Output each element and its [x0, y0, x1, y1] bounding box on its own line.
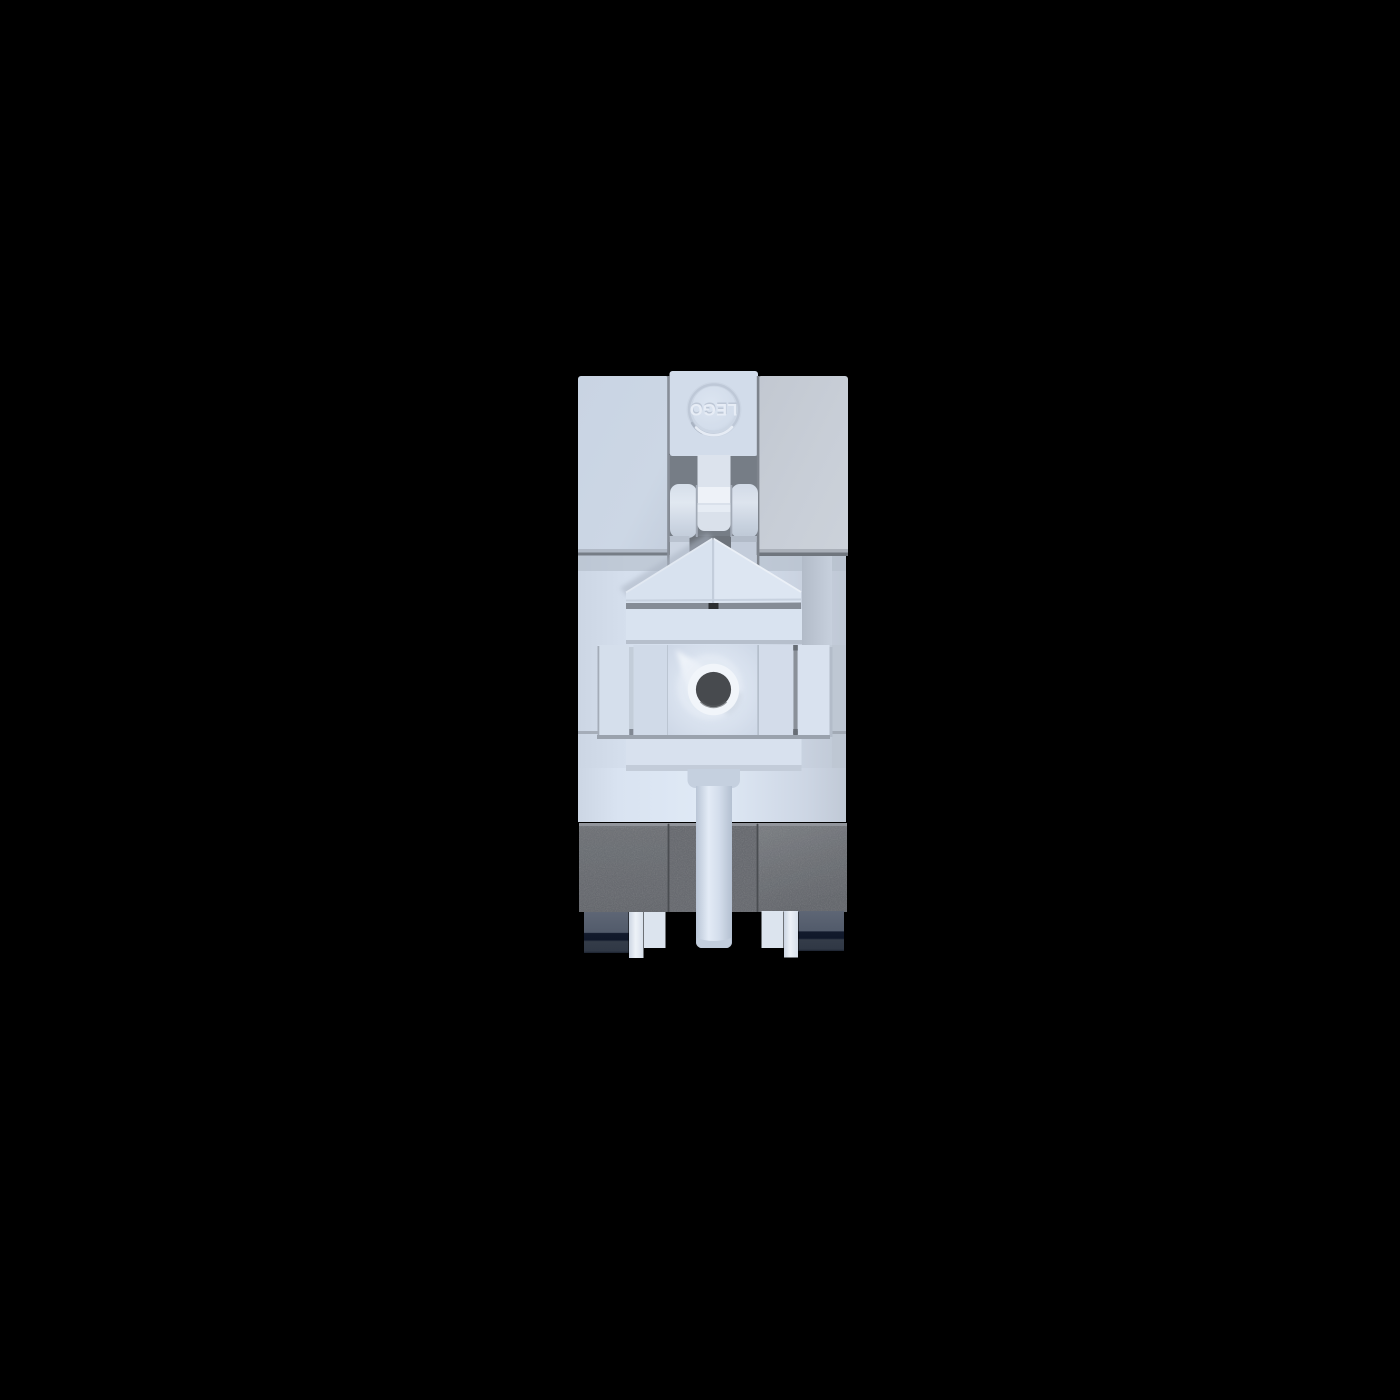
svg-text:LEGO: LEGO: [689, 400, 737, 418]
